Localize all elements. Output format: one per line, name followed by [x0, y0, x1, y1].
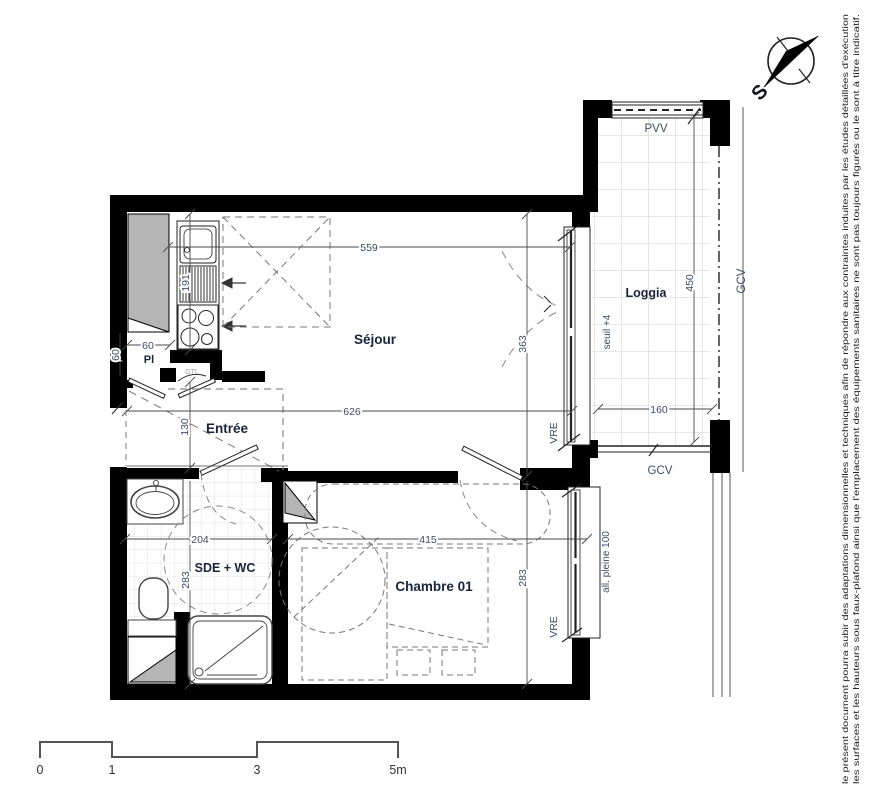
sejour-window-vre	[544, 224, 590, 451]
dim-191: 191	[180, 274, 192, 292]
disclaimer-line-2: les surfaces et les hauteurs sous faux-p…	[851, 14, 861, 784]
dim-60-h: 60	[142, 340, 154, 352]
dim-450: 450	[684, 274, 696, 292]
dim-204: 204	[191, 534, 209, 546]
dim-160: 160	[650, 404, 668, 416]
compass-south-label: S	[747, 80, 772, 105]
label-allege: all. pleine 100	[601, 531, 612, 593]
kitchen-arrows	[222, 278, 246, 331]
floor-plan-drawing: 559 626 160 204 415 60 191 130 283 363 2…	[0, 0, 872, 800]
dim-283-chambre: 283	[517, 569, 529, 587]
label-gcv-bottom: GCV	[648, 465, 673, 477]
dim-283-sde: 283	[180, 571, 192, 589]
shower-tray	[188, 616, 272, 684]
chambre-window-vre	[562, 483, 600, 642]
label-vre-chambre: VRE	[548, 616, 560, 638]
scale-tick-1: 1	[109, 763, 116, 777]
label-vre-sejour: VRE	[548, 422, 560, 444]
label-pvv: PVV	[644, 123, 667, 135]
kitchen-sink	[180, 226, 216, 263]
dim-559: 559	[360, 242, 378, 254]
room-label-placard: Pl	[144, 354, 154, 366]
scale-tick-3: 3	[254, 763, 261, 777]
disclaimer-text: le présent document pourra subir des ada…	[840, 14, 861, 784]
facade-lines	[713, 107, 743, 697]
floor-plan-page: 559 626 160 204 415 60 191 130 283 363 2…	[0, 0, 872, 800]
room-label-sde-wc: SDE + WC	[195, 561, 256, 575]
dim-415: 415	[419, 534, 437, 546]
room-label-entree: Entrée	[206, 421, 249, 436]
scale-bar: 0 1 3 5m	[37, 742, 407, 777]
washbasin	[127, 479, 183, 524]
sejour-dashed-zone	[223, 217, 330, 327]
dim-60-v: 60	[110, 349, 122, 361]
dim-130: 130	[179, 418, 191, 436]
kitchen-hob	[178, 305, 218, 349]
room-label-loggia: Loggia	[626, 286, 668, 300]
dim-363: 363	[517, 335, 529, 353]
label-gcv-right: GCV	[736, 268, 748, 293]
compass: S	[747, 36, 818, 105]
scale-tick-5m: 5m	[389, 763, 406, 777]
disclaimer-line-1: le présent document pourra subir des ada…	[840, 14, 850, 784]
label-seuil: seuil +4	[602, 314, 613, 349]
label-gtl: GTL	[185, 369, 199, 376]
room-label-chambre: Chambre 01	[395, 579, 473, 594]
dim-626: 626	[343, 406, 361, 418]
room-label-sejour: Séjour	[354, 332, 397, 347]
scale-tick-0: 0	[37, 763, 44, 777]
